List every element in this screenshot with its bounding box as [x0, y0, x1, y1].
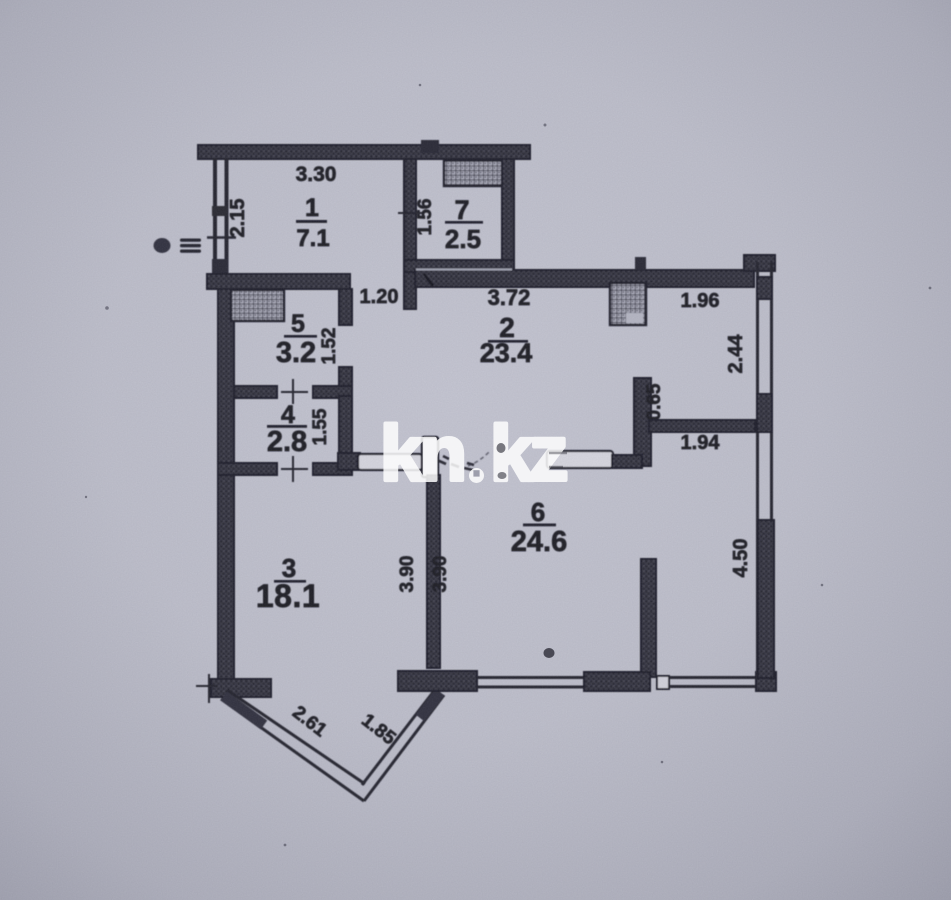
svg-text:kn: kn	[380, 409, 463, 497]
